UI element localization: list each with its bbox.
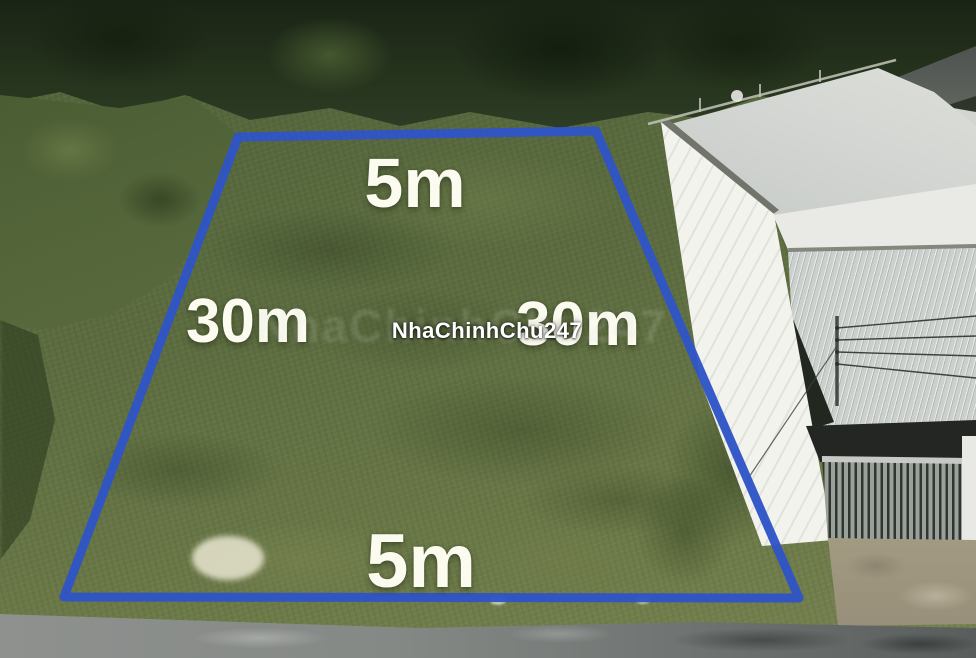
label-top-width: 5m	[364, 148, 465, 218]
watermark-text: NhaChinhChu247	[392, 318, 582, 344]
land-plot-photo: 5m 30m 30m 5m NhaChinhChu247 NhaChinhChu…	[0, 0, 976, 658]
power-lines	[747, 316, 976, 480]
fence-line	[648, 60, 896, 124]
label-bottom-width: 5m	[366, 524, 476, 600]
